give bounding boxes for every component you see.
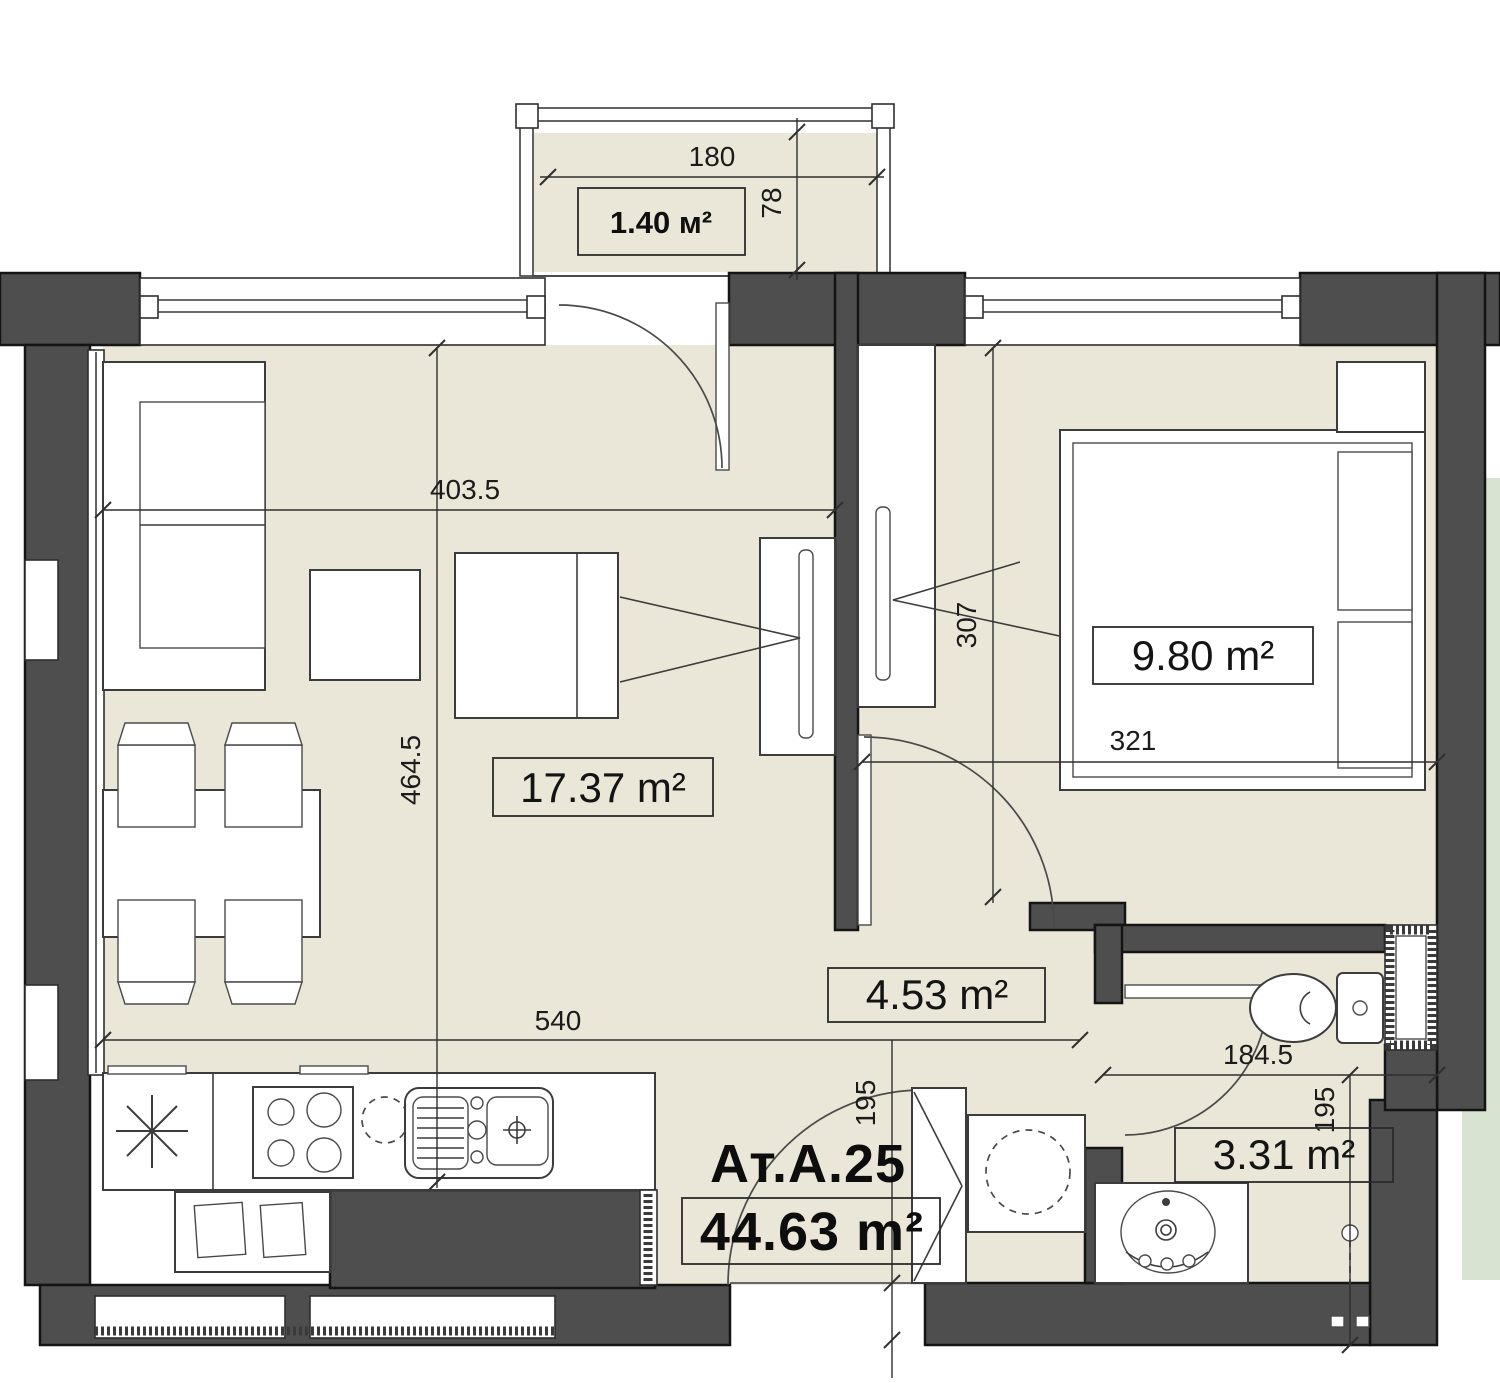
pillow — [1338, 452, 1412, 610]
dim-balcony-depth: 78 — [756, 187, 787, 218]
living-area-label: 17.37 m² — [520, 764, 686, 811]
armchair-bed — [455, 553, 618, 718]
dim-living-depth: 464.5 — [395, 735, 426, 805]
toilet — [1250, 973, 1383, 1043]
bedroom-area-label: 9.80 m² — [1132, 632, 1274, 679]
wall-bath-west-upper — [1095, 925, 1122, 1003]
wall-bath-north — [1095, 925, 1385, 952]
unit-label: Ат.А.25 — [710, 1134, 906, 1194]
wall-top-left — [0, 273, 140, 345]
dim-entry-depth: 195 — [850, 1080, 881, 1127]
dim-bath-width: 184.5 — [1223, 1039, 1293, 1070]
washing-machine — [968, 1115, 1085, 1232]
burner — [307, 1093, 341, 1127]
tv-cabinet-living — [760, 538, 835, 755]
floor-plan: 180 78 403.5 464.5 540 307 321 195 184.5… — [0, 0, 1500, 1383]
side-table — [310, 570, 420, 680]
left-wall-window-1 — [25, 560, 58, 660]
wall-right-bottom — [1370, 1100, 1437, 1345]
kitchen-sink — [405, 1088, 553, 1178]
installation-shaft — [1385, 925, 1437, 1050]
dim-balcony-width: 180 — [689, 141, 736, 172]
balcony-area-label: 1.40 м² — [610, 205, 712, 240]
burner — [268, 1140, 294, 1166]
dim-bedroom-width: 321 — [1110, 725, 1157, 756]
unit-area-label: 44.63 m² — [700, 1202, 924, 1262]
tv-cabinet-bedroom — [858, 345, 935, 707]
left-wall-window-2 — [25, 985, 58, 1080]
burner — [268, 1099, 294, 1125]
hall-area-label: 4.53 m² — [866, 971, 1008, 1018]
pillow — [1338, 622, 1412, 768]
nightstand — [1337, 362, 1425, 432]
bottom-window-1 — [95, 1296, 285, 1338]
bathroom-sink — [1095, 1183, 1248, 1283]
tv-living — [799, 550, 813, 738]
wall-bath-east-stub — [1385, 1045, 1437, 1110]
wall-under-kitchen — [330, 1190, 655, 1288]
bathroom-door-leaf — [1125, 985, 1268, 998]
dim-living-full-width: 540 — [535, 1005, 582, 1036]
wall-partition-living-bedroom — [835, 273, 858, 930]
floor-plan-canvas: 180 78 403.5 464.5 540 307 321 195 184.5… — [0, 0, 1500, 1383]
dim-bedroom-depth: 307 — [951, 602, 982, 649]
bath-area-label: 3.31 m² — [1213, 1131, 1355, 1178]
wall-bottom-right — [925, 1283, 1370, 1345]
tv-bedroom — [876, 507, 890, 680]
wall-left — [25, 345, 90, 1285]
balcony-door-leaf — [716, 303, 729, 470]
shoe-cabinet — [175, 1192, 330, 1272]
dim-living-width: 403.5 — [430, 474, 500, 505]
wall-right — [1437, 273, 1485, 1110]
dim-bath-depth: 195 — [1309, 1087, 1340, 1134]
burner — [307, 1138, 341, 1172]
